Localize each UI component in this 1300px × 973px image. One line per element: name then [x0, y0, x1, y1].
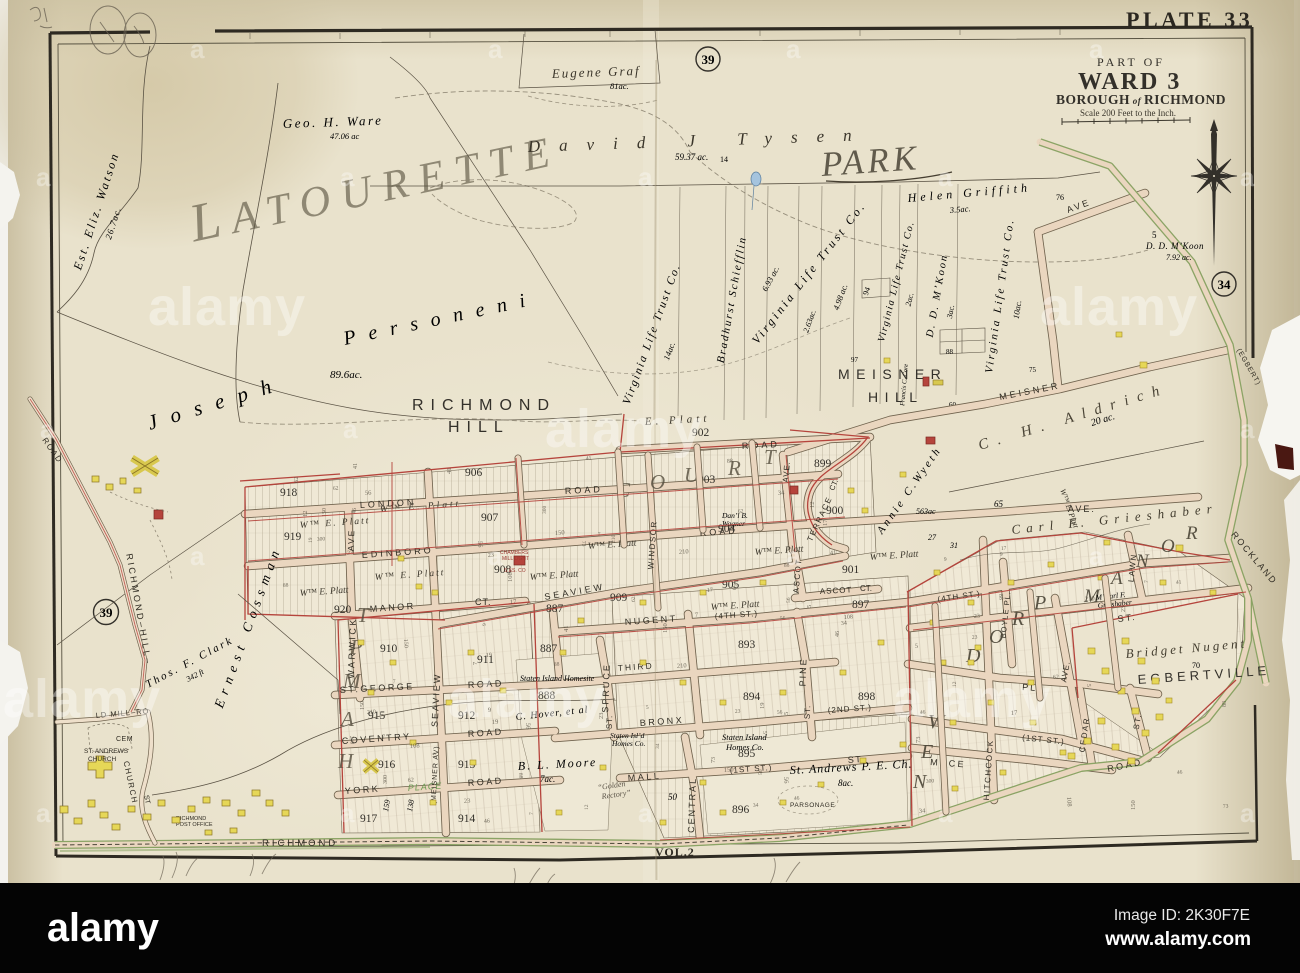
svg-text:R: R: [1185, 523, 1198, 544]
svg-text:88: 88: [946, 348, 954, 356]
svg-text:893: 893: [738, 639, 756, 651]
svg-text:www.alamy.com: www.alamy.com: [1104, 929, 1251, 950]
svg-text:150: 150: [662, 623, 669, 633]
svg-text:ST. ANDREWS: ST. ANDREWS: [84, 748, 129, 755]
svg-text:VOL.2: VOL.2: [655, 845, 695, 859]
svg-text:19: 19: [759, 703, 766, 710]
svg-text:7: 7: [473, 662, 479, 665]
svg-text:62: 62: [408, 778, 414, 784]
svg-text:3.5ac.: 3.5ac.: [948, 203, 971, 215]
svg-text:81ac.: 81ac.: [610, 81, 629, 91]
svg-text:23: 23: [735, 709, 741, 715]
svg-text:CHURCH: CHURCH: [88, 756, 116, 763]
svg-text:210: 210: [611, 535, 617, 544]
svg-text:D. D. M’Koon: D. D. M’Koon: [1145, 241, 1204, 251]
svg-text:alamy: alamy: [47, 906, 159, 950]
svg-text:MILL LIGHT: MILL LIGHT: [502, 556, 529, 562]
svg-text:88: 88: [283, 583, 289, 589]
svg-text:34: 34: [753, 803, 759, 809]
svg-text:62: 62: [333, 486, 339, 492]
svg-text:a: a: [1240, 414, 1255, 444]
svg-text:a: a: [36, 798, 51, 828]
svg-text:a: a: [40, 414, 55, 444]
svg-text:108: 108: [1065, 797, 1073, 807]
svg-text:a: a: [190, 541, 205, 571]
svg-text:56: 56: [786, 597, 792, 603]
svg-text:a: a: [638, 798, 653, 828]
svg-text:900: 900: [826, 505, 844, 517]
svg-text:12: 12: [302, 511, 309, 518]
svg-text:a: a: [1089, 34, 1104, 64]
svg-text:POST OFFICE: POST OFFICE: [176, 822, 213, 828]
svg-text:T: T: [764, 445, 777, 469]
svg-text:300: 300: [542, 506, 548, 515]
svg-text:150: 150: [730, 581, 737, 590]
svg-text:5: 5: [806, 605, 813, 608]
svg-text:150: 150: [555, 529, 565, 537]
svg-text:a: a: [488, 34, 503, 64]
svg-text:23: 23: [598, 713, 605, 720]
svg-text:7ac.: 7ac.: [540, 774, 555, 784]
svg-text:ST.: ST.: [803, 704, 813, 719]
svg-text:41: 41: [563, 626, 570, 633]
svg-text:PARK: PARK: [819, 138, 921, 184]
svg-text:917: 917: [360, 813, 378, 825]
svg-text:76: 76: [1056, 193, 1064, 202]
svg-text:Homes Co.: Homes Co.: [611, 739, 645, 748]
svg-text:19: 19: [492, 719, 499, 726]
svg-text:9: 9: [488, 707, 492, 714]
svg-text:PARSONAGE: PARSONAGE: [790, 802, 835, 809]
svg-text:O: O: [1161, 536, 1175, 557]
svg-text:210: 210: [367, 709, 376, 716]
svg-text:Homes Co.: Homes Co.: [725, 742, 764, 752]
svg-text:12: 12: [952, 681, 958, 687]
svg-text:62: 62: [1053, 675, 1059, 681]
svg-text:a: a: [1240, 162, 1255, 192]
svg-text:41: 41: [353, 463, 359, 469]
svg-text:PLATE 33: PLATE 33: [1126, 7, 1253, 32]
svg-text:5: 5: [1152, 230, 1157, 240]
svg-text:PINE: PINE: [797, 657, 808, 686]
svg-text:73: 73: [915, 737, 922, 744]
svg-text:9: 9: [482, 623, 488, 626]
svg-text:88: 88: [997, 594, 1003, 600]
svg-text:CT.: CT.: [475, 597, 492, 607]
svg-text:901: 901: [842, 564, 860, 576]
svg-text:a: a: [1089, 541, 1104, 571]
svg-text:210: 210: [677, 662, 687, 670]
svg-text:23: 23: [972, 635, 978, 641]
svg-text:7: 7: [529, 812, 535, 815]
svg-text:88: 88: [517, 773, 523, 779]
svg-text:alamy: alamy: [1040, 277, 1198, 337]
svg-text:27: 27: [928, 533, 937, 542]
svg-text:89.6ac.: 89.6ac.: [330, 369, 362, 381]
svg-text:210: 210: [348, 736, 355, 745]
svg-text:907: 907: [481, 512, 499, 524]
svg-text:17: 17: [1001, 546, 1007, 552]
svg-text:150: 150: [360, 701, 366, 710]
svg-text:46: 46: [794, 796, 800, 802]
svg-text:CEM: CEM: [116, 736, 133, 743]
svg-text:alamy: alamy: [3, 669, 161, 729]
svg-text:41: 41: [586, 456, 592, 462]
svg-text:46: 46: [1177, 770, 1183, 776]
svg-text:150: 150: [724, 766, 734, 774]
svg-text:PART OF: PART OF: [1097, 55, 1165, 69]
svg-text:19: 19: [308, 537, 314, 543]
svg-text:a: a: [340, 162, 355, 192]
svg-text:56: 56: [780, 616, 786, 622]
svg-text:a: a: [1240, 798, 1255, 828]
svg-text:897: 897: [852, 599, 870, 611]
svg-text:56: 56: [758, 769, 764, 775]
svg-text:46: 46: [920, 710, 926, 716]
svg-text:a: a: [340, 798, 355, 828]
svg-text:910: 910: [380, 643, 398, 655]
svg-text:916: 916: [378, 759, 396, 771]
svg-text:41: 41: [830, 550, 837, 557]
svg-text:ASCOT: ASCOT: [820, 585, 853, 596]
svg-text:896: 896: [732, 804, 750, 816]
svg-text:Eugene Graf: Eugene Graf: [551, 63, 642, 81]
svg-text:17: 17: [707, 588, 713, 594]
svg-text:62: 62: [738, 509, 744, 515]
svg-text:46: 46: [484, 819, 490, 825]
svg-text:alamy: alamy: [148, 277, 306, 337]
svg-text:50: 50: [668, 792, 678, 802]
svg-text:HILL: HILL: [868, 389, 924, 405]
svg-text:56: 56: [777, 710, 783, 716]
svg-text:34: 34: [1218, 277, 1232, 292]
svg-text:75: 75: [1029, 366, 1037, 374]
svg-text:88: 88: [1222, 701, 1228, 707]
svg-text:12: 12: [809, 502, 816, 509]
svg-text:CT.: CT.: [860, 584, 872, 593]
svg-text:A: A: [1109, 568, 1123, 589]
svg-text:7.92 ac.: 7.92 ac.: [1166, 253, 1192, 262]
svg-text:898: 898: [858, 691, 876, 703]
svg-text:MEISNER: MEISNER: [838, 366, 947, 382]
svg-text:HILL: HILL: [448, 419, 510, 436]
svg-text:46: 46: [835, 631, 841, 637]
svg-text:a: a: [36, 162, 51, 192]
svg-text:88: 88: [727, 459, 733, 465]
svg-text:alamy: alamy: [893, 669, 1051, 729]
svg-text:alamy: alamy: [545, 399, 703, 459]
svg-text:ROAD: ROAD: [565, 484, 603, 496]
svg-text:a: a: [343, 414, 358, 444]
svg-text:alamy: alamy: [448, 669, 606, 729]
svg-text:23: 23: [464, 798, 471, 805]
svg-text:12: 12: [584, 804, 590, 810]
svg-text:300: 300: [926, 778, 935, 785]
svg-text:T: T: [357, 603, 370, 627]
svg-text:39: 39: [100, 605, 114, 620]
svg-text:O: O: [989, 626, 1003, 648]
svg-text:M: M: [342, 669, 362, 693]
svg-text:AVE.: AVE.: [781, 461, 792, 483]
svg-text:5: 5: [783, 712, 790, 715]
svg-text:E: E: [920, 741, 933, 763]
svg-text:23: 23: [974, 614, 980, 620]
svg-text:108: 108: [507, 572, 514, 582]
svg-text:O: O: [650, 470, 665, 494]
svg-text:Image ID: 2K30F7E: Image ID: 2K30F7E: [1114, 907, 1250, 924]
svg-text:a: a: [638, 162, 653, 192]
svg-text:906: 906: [465, 467, 483, 479]
svg-text:19: 19: [432, 752, 438, 758]
svg-text:7: 7: [1144, 580, 1150, 583]
svg-text:5: 5: [915, 643, 919, 650]
svg-text:97: 97: [851, 356, 859, 364]
svg-text:918: 918: [280, 487, 298, 499]
svg-text:88: 88: [554, 662, 560, 668]
svg-text:65: 65: [994, 499, 1004, 509]
svg-text:47.06 ac: 47.06 ac: [330, 131, 360, 141]
svg-text:P: P: [349, 635, 363, 659]
svg-text:920: 920: [334, 604, 352, 616]
svg-text:14: 14: [720, 155, 728, 164]
svg-text:914: 914: [458, 813, 476, 825]
svg-text:23: 23: [488, 553, 494, 559]
svg-text:563ac: 563ac: [916, 507, 936, 516]
svg-text:5: 5: [1085, 684, 1091, 687]
svg-text:8ac.: 8ac.: [838, 778, 853, 788]
svg-text:a: a: [786, 34, 801, 64]
svg-text:a: a: [938, 162, 953, 192]
svg-text:62: 62: [631, 596, 637, 602]
svg-text:73: 73: [711, 757, 717, 763]
svg-text:a: a: [190, 34, 205, 64]
svg-text:73: 73: [1223, 804, 1229, 810]
svg-text:ST.: ST.: [605, 714, 615, 729]
svg-text:59.37 ac.: 59.37 ac.: [675, 152, 708, 162]
svg-text:62: 62: [293, 477, 300, 484]
svg-text:919: 919: [284, 531, 302, 543]
svg-text:73: 73: [580, 541, 586, 547]
svg-text:RICHMOND: RICHMOND: [412, 397, 556, 414]
svg-text:39: 39: [702, 52, 716, 67]
svg-text:894: 894: [743, 691, 761, 703]
svg-text:5: 5: [761, 731, 767, 734]
svg-text:887: 887: [540, 643, 558, 655]
svg-text:88: 88: [784, 563, 790, 569]
svg-text:41: 41: [1176, 580, 1182, 586]
svg-text:150: 150: [1130, 800, 1137, 810]
svg-text:41: 41: [446, 468, 453, 475]
svg-text:887: 887: [546, 603, 564, 615]
svg-text:150: 150: [402, 639, 409, 648]
svg-text:34: 34: [841, 621, 847, 627]
svg-text:210: 210: [1085, 595, 1095, 603]
svg-text:899: 899: [814, 458, 832, 470]
svg-text:31: 31: [949, 541, 958, 550]
svg-text:300: 300: [383, 775, 389, 784]
svg-text:210: 210: [679, 548, 689, 556]
svg-text:108: 108: [410, 742, 420, 750]
svg-text:23: 23: [1121, 606, 1127, 612]
svg-text:300: 300: [317, 536, 326, 543]
svg-text:H: H: [337, 749, 355, 773]
svg-text:Staten Island: Staten Island: [722, 732, 767, 742]
svg-text:Wagner: Wagner: [722, 519, 745, 528]
svg-text:17: 17: [822, 519, 829, 526]
svg-text:Scale 200 Feet to the Inch.: Scale 200 Feet to the Inch.: [1080, 108, 1176, 118]
svg-text:AVE: AVE: [346, 529, 357, 552]
svg-text:19: 19: [486, 653, 492, 659]
svg-text:CENTRAL: CENTRAL: [686, 777, 698, 833]
